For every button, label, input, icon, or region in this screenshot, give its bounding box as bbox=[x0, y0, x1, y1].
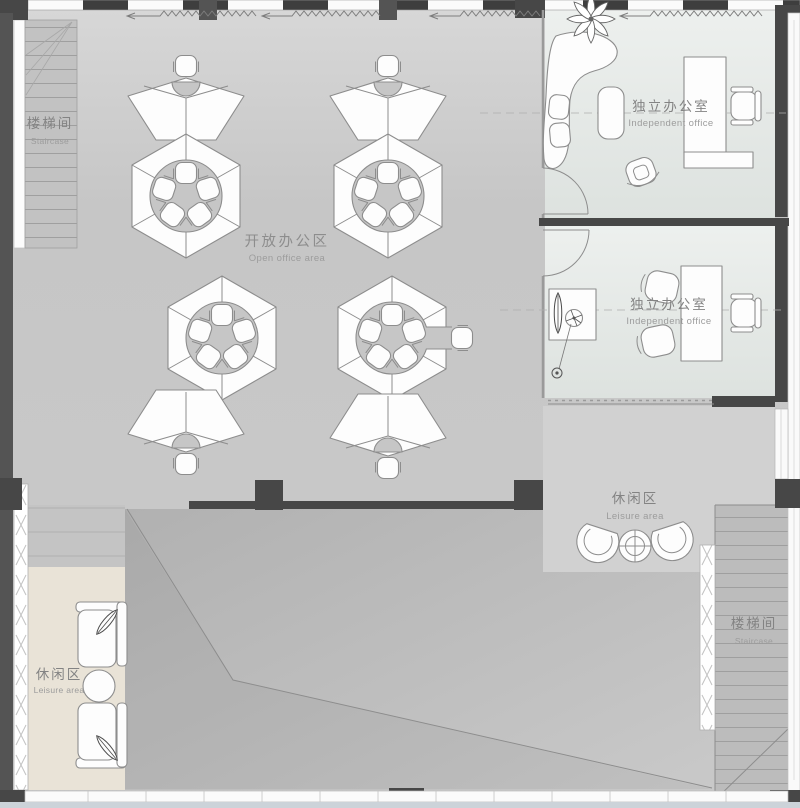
column bbox=[255, 480, 283, 510]
round-table bbox=[83, 670, 115, 702]
fan-symbol bbox=[566, 310, 583, 327]
armchair bbox=[76, 602, 127, 667]
wall-top-checker bbox=[28, 0, 800, 10]
column bbox=[199, 0, 217, 20]
label-staircase-top-left-zh: 楼梯间 bbox=[27, 116, 74, 131]
window-right-lower bbox=[775, 409, 788, 479]
label-leisure-right-zh: 休闲区 bbox=[612, 491, 659, 506]
label-staircase-bottom-right-zh: 楼梯间 bbox=[731, 616, 778, 631]
desk bbox=[681, 266, 722, 361]
window-bottom bbox=[0, 791, 800, 808]
armchair bbox=[76, 703, 127, 768]
label-staircase-top-left-en: Staircase bbox=[31, 136, 69, 146]
column bbox=[379, 0, 397, 20]
wall-office-divider bbox=[539, 218, 789, 226]
steps-landing bbox=[28, 505, 125, 567]
column bbox=[0, 478, 22, 510]
desk-return bbox=[684, 152, 753, 168]
label-leisure-left-zh: 休闲区 bbox=[36, 667, 83, 682]
label-office-bottom-zh: 独立办公室 bbox=[630, 296, 708, 312]
column bbox=[775, 479, 800, 508]
column bbox=[515, 0, 545, 18]
floor-plan-drawing: 楼梯间 Staircase 开放办公区 Open office area 独立办… bbox=[0, 0, 800, 808]
coffee-table bbox=[598, 87, 624, 139]
wall-office2-bottom bbox=[712, 396, 775, 407]
wall-void-top bbox=[189, 501, 543, 509]
label-open-office-zh: 开放办公区 bbox=[245, 233, 330, 250]
label-office-bottom-en: Independent office bbox=[626, 316, 711, 327]
floor-plan: 楼梯间 Staircase 开放办公区 Open office area 独立办… bbox=[0, 0, 800, 808]
label-staircase-bottom-right-en: Staircase bbox=[735, 636, 773, 646]
room-leisure-right bbox=[543, 406, 775, 505]
bottom-edge-band bbox=[0, 802, 800, 808]
wall-left bbox=[0, 13, 13, 790]
wall-right-upper bbox=[775, 13, 788, 217]
label-leisure-right-en: Leisure area bbox=[606, 511, 664, 522]
column bbox=[514, 480, 543, 510]
label-leisure-left-en: Leisure area bbox=[34, 685, 85, 695]
label-open-office-en: Open office area bbox=[249, 253, 326, 264]
label-office-top-zh: 独立办公室 bbox=[632, 98, 710, 114]
staircase-top-left bbox=[14, 20, 77, 248]
marker-dot bbox=[555, 371, 558, 374]
label-office-top-en: Independent office bbox=[628, 118, 713, 129]
wall-right-mid bbox=[775, 226, 788, 402]
round-table bbox=[619, 530, 651, 562]
curtain-wall-left bbox=[14, 484, 28, 790]
